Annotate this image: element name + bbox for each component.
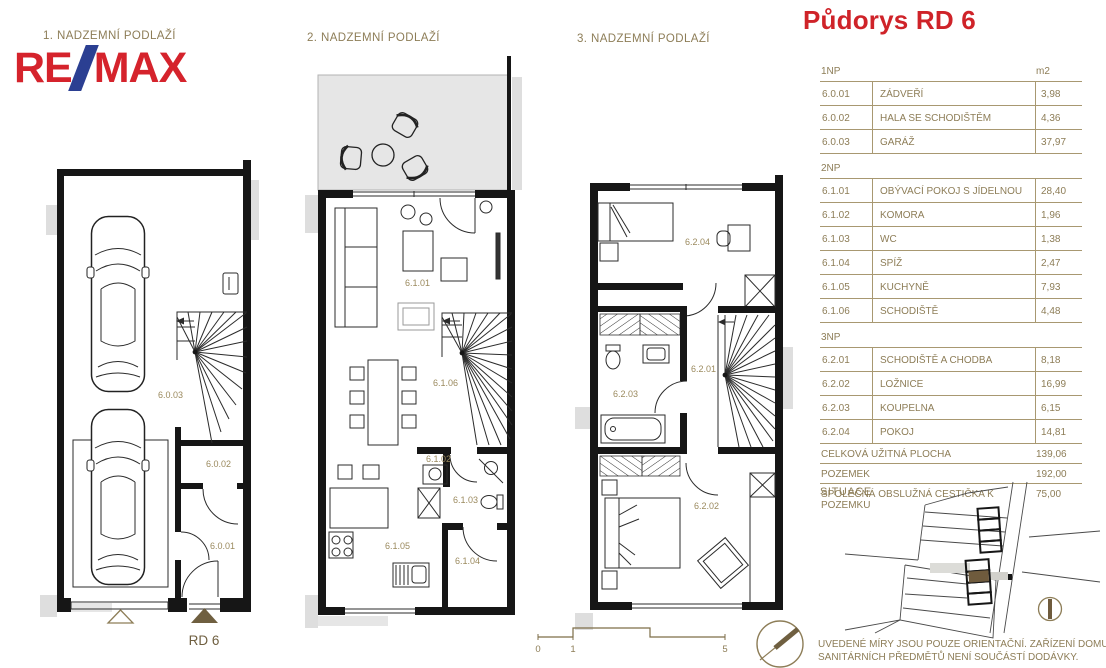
remax-logo-re: RE [14,47,72,90]
table-row: 6.1.01OBÝVACÍ POKOJ S JÍDELNOU28,40 [820,179,1082,203]
floor3-label: 3. NADZEMNÍ PODLAŽÍ [577,33,710,45]
car-icon [87,217,149,392]
situace-sketch [845,478,1106,633]
area-table: 1NP m2 6.0.01ZÁDVEŘÍ3,98 6.0.02HALA SE S… [820,64,1082,514]
table-row: 6.1.06SCHODIŠTĚ4,48 [820,299,1082,323]
room-name: GARÁŽ [872,130,1035,153]
room-name: KOMORA [872,203,1035,226]
remax-logo: RE MAX [14,44,186,92]
kitchen-fixtures [329,465,429,587]
door-swing [182,561,218,597]
wardrobe-hatch [640,314,680,335]
disclaimer-note: UVEDENÉ MÍRY JSOU POUZE ORIENTAČNÍ. ZAŘÍ… [818,638,1106,664]
disclaimer-line2: SANITÁRNÍCH PŘEDMĚTŮ NENÍ SOUČÁSTÍ DODÁV… [818,651,1106,664]
page-title: Půdorys RD 6 [803,5,976,36]
table-section-header: 3NP [820,323,1082,348]
room-area: 2,47 [1035,251,1082,274]
room-name: KOUPELNA [872,396,1035,419]
scale-tick-1: 1 [570,644,575,655]
room-code-stairs: 6.1.06 [433,378,458,388]
table-row: 6.1.03WC1,38 [820,227,1082,251]
floor2-label: 2. NADZEMNÍ PODLAŽÍ [307,32,440,44]
floor1-label: 1. NADZEMNÍ PODLAŽÍ [43,30,176,42]
room-name: OBÝVACÍ POKOJ S JÍDELNOU [872,179,1035,202]
room-area: 7,93 [1035,275,1082,298]
table-row: 6.2.01SCHODIŠTĚ A CHODBA8,18 [820,348,1082,372]
scale-tick-0: 0 [535,644,540,655]
room-code: 6.1.04 [820,251,872,274]
room-name: KUCHYNĚ [872,275,1035,298]
door-swing [181,532,209,560]
room-code: 6.0.01 [820,82,872,105]
door-swing [203,489,238,524]
door-swing [440,198,475,233]
table-row: 6.0.01ZÁDVEŘÍ3,98 [820,82,1082,106]
room-code: 6.1.03 [820,227,872,250]
room-code: 6.1.05 [820,275,872,298]
room-code-kitchen: 6.1.05 [385,541,410,551]
room-area: 3,98 [1035,82,1082,105]
situace-gray-strip [930,563,970,573]
room-code-room: 6.2.04 [685,237,710,247]
room-name: POKOJ [872,420,1035,443]
room-code-komora: 6.1.02 [426,454,451,464]
table-row: 6.1.04SPÍŽ2,47 [820,251,1082,275]
remax-logo-max: MAX [94,47,187,90]
terrace-chair-icon [340,145,362,171]
wall-box-fixture [223,273,238,294]
table-row: 6.2.02LOŽNICE16,99 [820,372,1082,396]
section-title: 2NP [820,154,1035,178]
situace-highlighted-unit [968,570,989,582]
room-name: WC [872,227,1035,250]
room-code-wc: 6.1.03 [453,495,478,505]
room-area: 8,18 [1035,348,1082,371]
car-icon [87,410,149,585]
room-area: 16,99 [1035,372,1082,395]
room-area: 6,15 [1035,396,1082,419]
wardrobe-hatch [600,456,642,476]
room-code-hall: 6.0.02 [206,459,231,469]
room-name: HALA SE SCHODIŠTĚM [872,106,1035,129]
room-code: 6.2.04 [820,420,872,443]
wardrobe-hatch [642,456,680,476]
stairs-1np [176,312,247,443]
room-area: 1,96 [1035,203,1082,226]
room-code: 6.2.03 [820,396,872,419]
table-section-header: 2NP [820,154,1082,179]
room-name: SCHODIŠTĚ A CHODBA [872,348,1035,371]
room-code: 6.2.02 [820,372,872,395]
unit-header: m2 [1035,64,1082,81]
scale-tick-5: 5 [722,644,727,655]
door-swing [683,283,716,316]
room-area: 37,97 [1035,130,1082,153]
disclaimer-line1: UVEDENÉ MÍRY JSOU POUZE ORIENTAČNÍ. ZAŘÍ… [818,638,1106,651]
door-swing [686,463,718,495]
table-row: 6.0.02HALA SE SCHODIŠTĚM4,36 [820,106,1082,130]
room-code: 6.1.02 [820,203,872,226]
room-code: 6.1.01 [820,179,872,202]
kid-room-furniture [598,203,750,261]
room-code-stairs-hall: 6.2.01 [691,364,716,374]
house-label: RD 6 [189,633,220,648]
wardrobe-hatch [600,314,640,335]
floorplan-2np-drawing: 6.1.01 6.1.06 6.1.02 6.1.03 6.1.05 6.1.0… [305,55,530,630]
summary-label: CELKOVÁ UŽITNÁ PLOCHA [820,444,1035,463]
situace-gray-strip [988,572,1008,580]
triangle-marker-filled [191,608,218,623]
room-code-living: 6.1.01 [405,278,430,288]
room-code-garage: 6.0.03 [158,390,183,400]
room-code-bathroom: 6.2.03 [613,389,638,399]
floorplan-1np-drawing: 6.0.03 6.0.02 6.0.01 RD 6 [40,155,270,660]
compass-icon [748,610,812,668]
room-code-bedroom: 6.2.02 [694,501,719,511]
room-name: SCHODIŠTĚ [872,299,1035,322]
section-title: 1NP [820,64,1035,81]
room-code: 6.0.03 [820,130,872,153]
floorplan-3np-drawing: 6.2.04 6.2.01 6.2.03 6.2.02 [575,175,795,630]
room-area: 4,36 [1035,106,1082,129]
table-section-header: 1NP m2 [820,64,1082,82]
room-code: 6.2.01 [820,348,872,371]
floorplan-sheet: 1. NADZEMNÍ PODLAŽÍ 2. NADZEMNÍ PODLAŽÍ … [0,0,1106,668]
room-area: 14,81 [1035,420,1082,443]
scale-bar: 0 1 5 [530,618,740,666]
room-area: 28,40 [1035,179,1082,202]
room-name: LOŽNICE [872,372,1035,395]
utility-fixtures [418,455,503,561]
table-row: 6.2.03KOUPELNA6,15 [820,396,1082,420]
stairs-3np [718,315,775,447]
room-code: 6.1.06 [820,299,872,322]
bedroom-furniture [602,473,775,602]
room-code-spiz: 6.1.04 [455,556,480,566]
summary-value: 139,06 [1035,444,1082,463]
room-code-entry: 6.0.01 [210,541,235,551]
door-swing [655,381,687,413]
table-row: 6.1.05KUCHYNĚ7,93 [820,275,1082,299]
room-area: 1,38 [1035,227,1082,250]
room-name: ZÁDVEŘÍ [872,82,1035,105]
room-code: 6.0.02 [820,106,872,129]
table-row: 6.2.04POKOJ14,81 [820,420,1082,444]
section-title: 3NP [820,323,1035,347]
terrace-table [372,144,394,166]
dining-set [350,360,416,445]
table-row: 6.1.02KOMORA1,96 [820,203,1082,227]
table-row: 6.0.03GARÁŽ37,97 [820,130,1082,154]
summary-row-total-area: CELKOVÁ UŽITNÁ PLOCHA139,06 [820,444,1082,464]
room-area: 4,48 [1035,299,1082,322]
room-name: SPÍŽ [872,251,1035,274]
